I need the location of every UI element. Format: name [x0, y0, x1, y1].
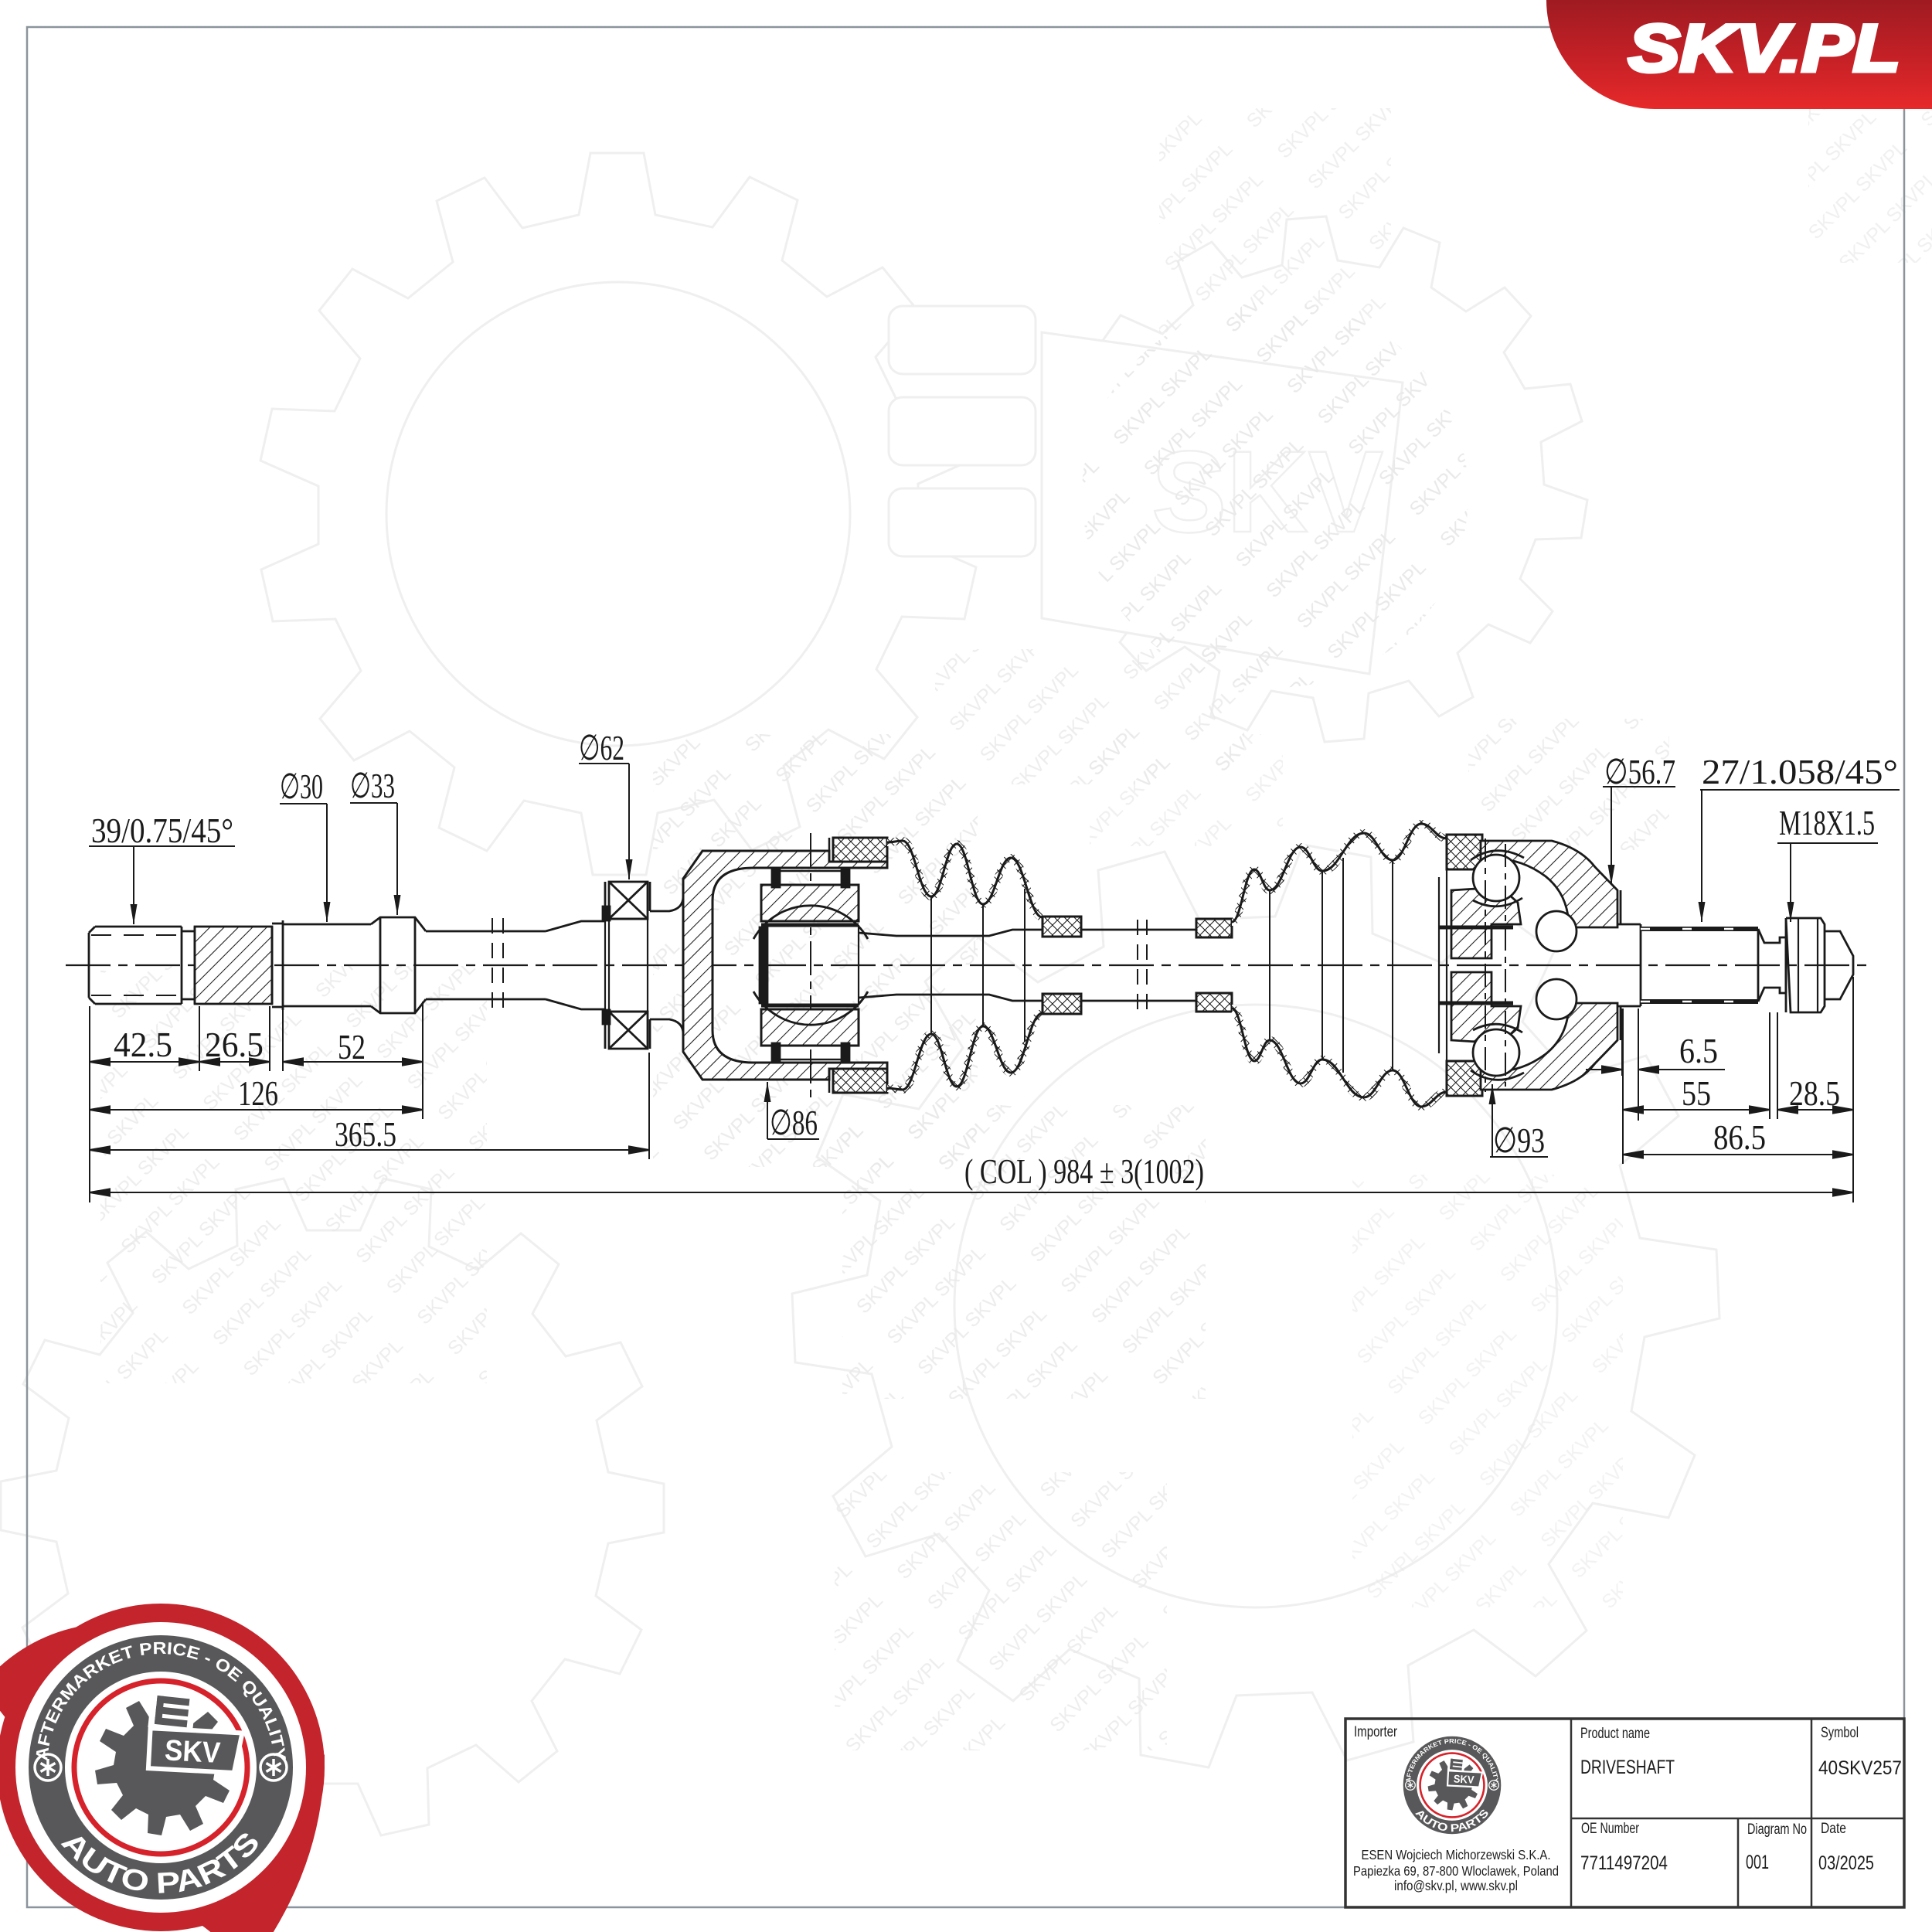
svg-text:( COL ) 984 ± 3(1002): ( COL ) 984 ± 3(1002)	[964, 1151, 1204, 1191]
svg-text:6.5: 6.5	[1679, 1031, 1718, 1070]
svg-text:Importer: Importer	[1354, 1724, 1398, 1740]
svg-text:∅93: ∅93	[1493, 1121, 1545, 1160]
svg-text:40SKV257: 40SKV257	[1818, 1757, 1902, 1779]
svg-text:86.5: 86.5	[1713, 1117, 1766, 1157]
svg-text:∅30: ∅30	[280, 767, 323, 806]
svg-text:Papiezka 69, 87-800 Wloclawek,: Papiezka 69, 87-800 Wloclawek, Poland	[1353, 1863, 1559, 1879]
svg-text:∅62: ∅62	[579, 728, 624, 767]
svg-text:55: 55	[1682, 1073, 1711, 1113]
svg-text:Date: Date	[1821, 1821, 1846, 1837]
svg-text:27/1.058/45°: 27/1.058/45°	[1702, 752, 1898, 791]
svg-text:Symbol: Symbol	[1821, 1725, 1859, 1741]
svg-text:52: 52	[338, 1027, 366, 1066]
svg-text:SKV.PL: SKV.PL	[1628, 12, 1900, 86]
svg-text:ESEN Wojciech Michorzewski S.K: ESEN Wojciech Michorzewski S.K.A.	[1362, 1847, 1551, 1862]
svg-text:M18X1.5: M18X1.5	[1779, 803, 1875, 842]
svg-text:Product name: Product name	[1580, 1726, 1650, 1742]
svg-text:OE Number: OE Number	[1581, 1821, 1639, 1837]
svg-text:126: 126	[238, 1073, 278, 1113]
svg-text:365.5: 365.5	[335, 1114, 396, 1154]
svg-text:03/2025: 03/2025	[1818, 1852, 1874, 1874]
svg-text:info@skv.pl, www.skv.pl: info@skv.pl, www.skv.pl	[1394, 1878, 1518, 1893]
svg-text:001: 001	[1746, 1852, 1769, 1873]
svg-text:∅86: ∅86	[770, 1103, 818, 1142]
svg-text:∅56.7: ∅56.7	[1604, 752, 1675, 791]
svg-text:∅33: ∅33	[350, 766, 395, 805]
svg-text:39/0.75/45°: 39/0.75/45°	[91, 811, 233, 850]
svg-text:42.5: 42.5	[114, 1025, 172, 1064]
svg-text:28.5: 28.5	[1789, 1073, 1840, 1113]
svg-text:DRIVESHAFT: DRIVESHAFT	[1580, 1757, 1675, 1778]
svg-text:Diagram No: Diagram No	[1747, 1821, 1807, 1838]
svg-text:7711497204: 7711497204	[1580, 1852, 1668, 1874]
svg-text:26.5: 26.5	[205, 1025, 264, 1064]
